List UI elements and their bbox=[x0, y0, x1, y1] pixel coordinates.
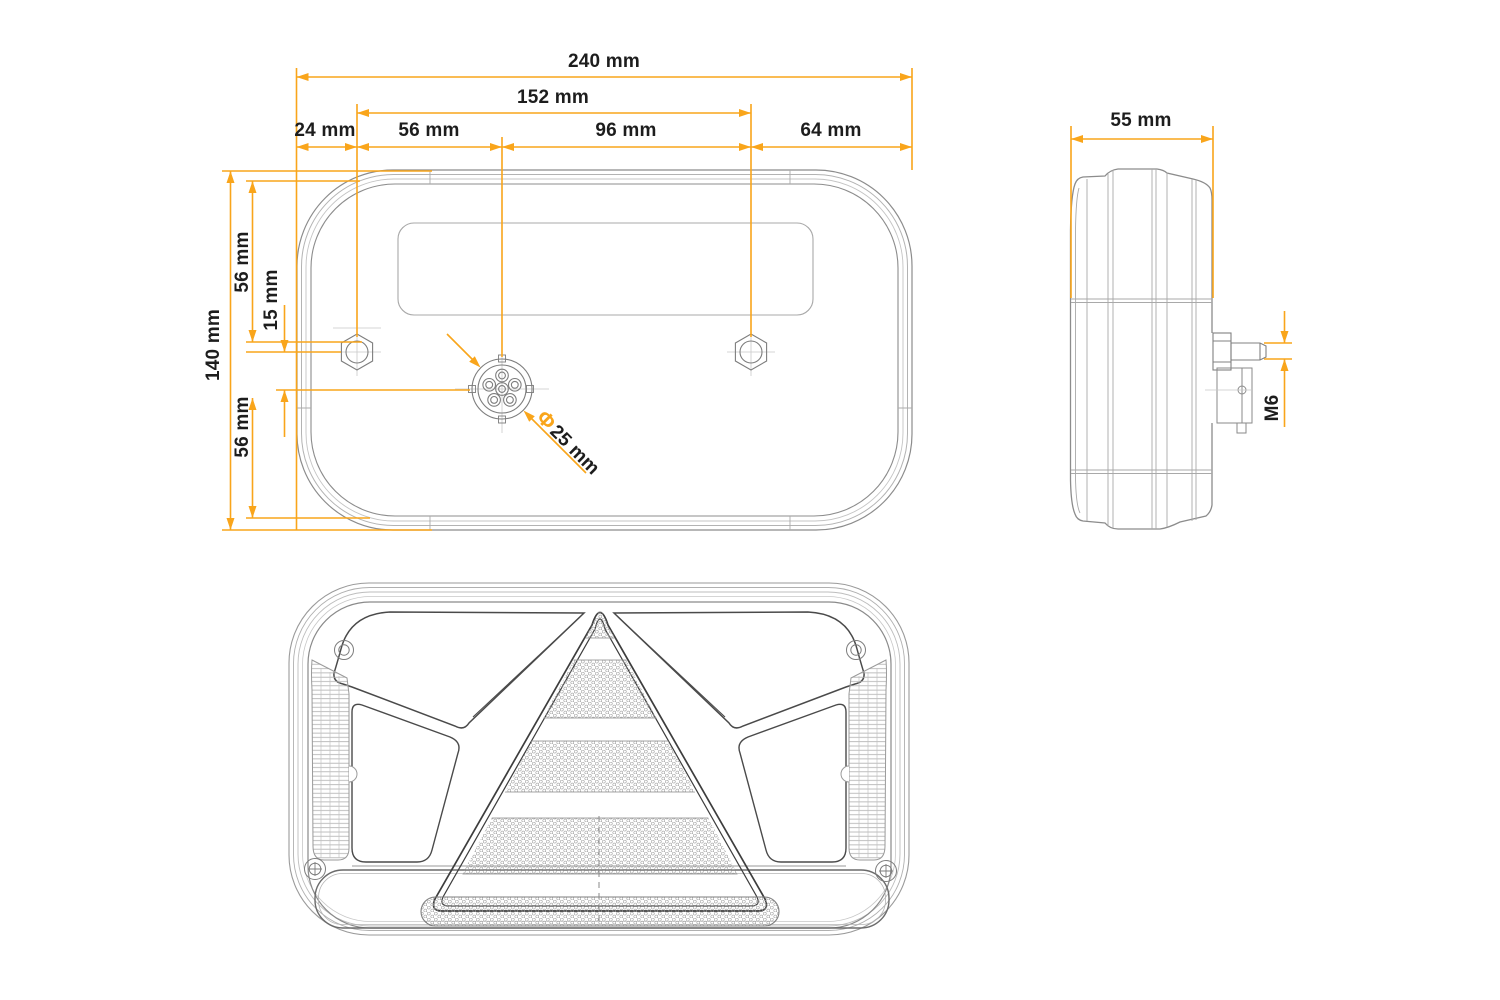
lamp-side-contours bbox=[1071, 169, 1212, 529]
lens-strip-left bbox=[312, 660, 358, 860]
dim-label-64mm: 64 mm bbox=[800, 120, 861, 142]
dim-label-depth: 55 mm bbox=[1110, 110, 1171, 132]
side-dimension-lines bbox=[1071, 126, 1292, 427]
dim-label-24mm: 24 mm bbox=[294, 120, 355, 142]
dim-label-hole-span: 152 mm bbox=[517, 87, 589, 109]
dim-label-56mm-horizontal: 56 mm bbox=[398, 120, 459, 142]
lens-strip-right bbox=[841, 660, 887, 860]
dim-label-total-width: 240 mm bbox=[568, 51, 640, 73]
wing-panel-left bbox=[334, 612, 584, 728]
dim-label-96mm: 96 mm bbox=[595, 120, 656, 142]
technical-drawing-page: 240 mm 152 mm 24 mm 56 mm 96 mm 64 mm 14… bbox=[0, 0, 1500, 1000]
dim-label-15mm: 15 mm bbox=[261, 269, 283, 330]
dim-label-56mm-top: 56 mm bbox=[232, 231, 254, 292]
dim-label-56mm-bottom: 56 mm bbox=[232, 396, 254, 457]
mounting-stud-m6 bbox=[1213, 333, 1266, 370]
lamp-back-outline bbox=[297, 170, 912, 530]
mid-panel-left bbox=[352, 704, 459, 862]
dim-label-total-height: 140 mm bbox=[203, 309, 225, 381]
side-view-drawing bbox=[1071, 126, 1293, 529]
dim-label-m6: M6 bbox=[1262, 395, 1284, 422]
screw-top-left bbox=[335, 641, 354, 660]
lamp-side-outline bbox=[1071, 169, 1213, 529]
mid-panel-right bbox=[739, 704, 846, 862]
reflector-bands bbox=[420, 612, 780, 874]
reflector-bottom-bar bbox=[421, 897, 779, 926]
front-view-drawing bbox=[289, 583, 909, 935]
drawing-canvas bbox=[0, 0, 1500, 1000]
